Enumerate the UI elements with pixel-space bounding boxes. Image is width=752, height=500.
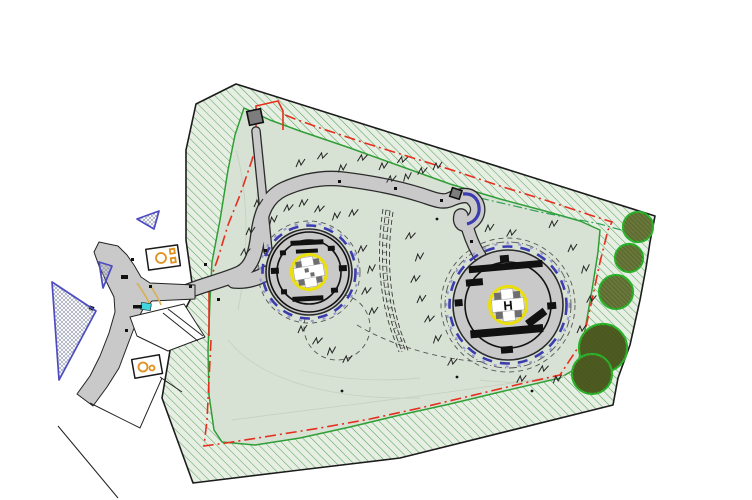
east-helipad: H — [447, 244, 570, 367]
blue-hatched-triangle — [52, 282, 96, 380]
tree-icon — [615, 244, 643, 272]
helipad-h-marking: H — [503, 298, 514, 314]
tree-icon — [599, 275, 633, 309]
site-plan-canvas: H — [0, 0, 752, 500]
east-helipad-tlof: H — [488, 285, 528, 325]
hook-structure — [450, 188, 462, 200]
site-plan-drawing: H — [0, 0, 752, 500]
building-footprint-south — [132, 355, 163, 379]
cyan-marker — [140, 302, 151, 310]
blue-hatched-triangle — [137, 211, 159, 229]
boundary-structure — [247, 109, 264, 126]
building-footprint-north — [146, 245, 181, 270]
tree-icon — [623, 212, 653, 242]
tree-icon — [572, 354, 612, 394]
